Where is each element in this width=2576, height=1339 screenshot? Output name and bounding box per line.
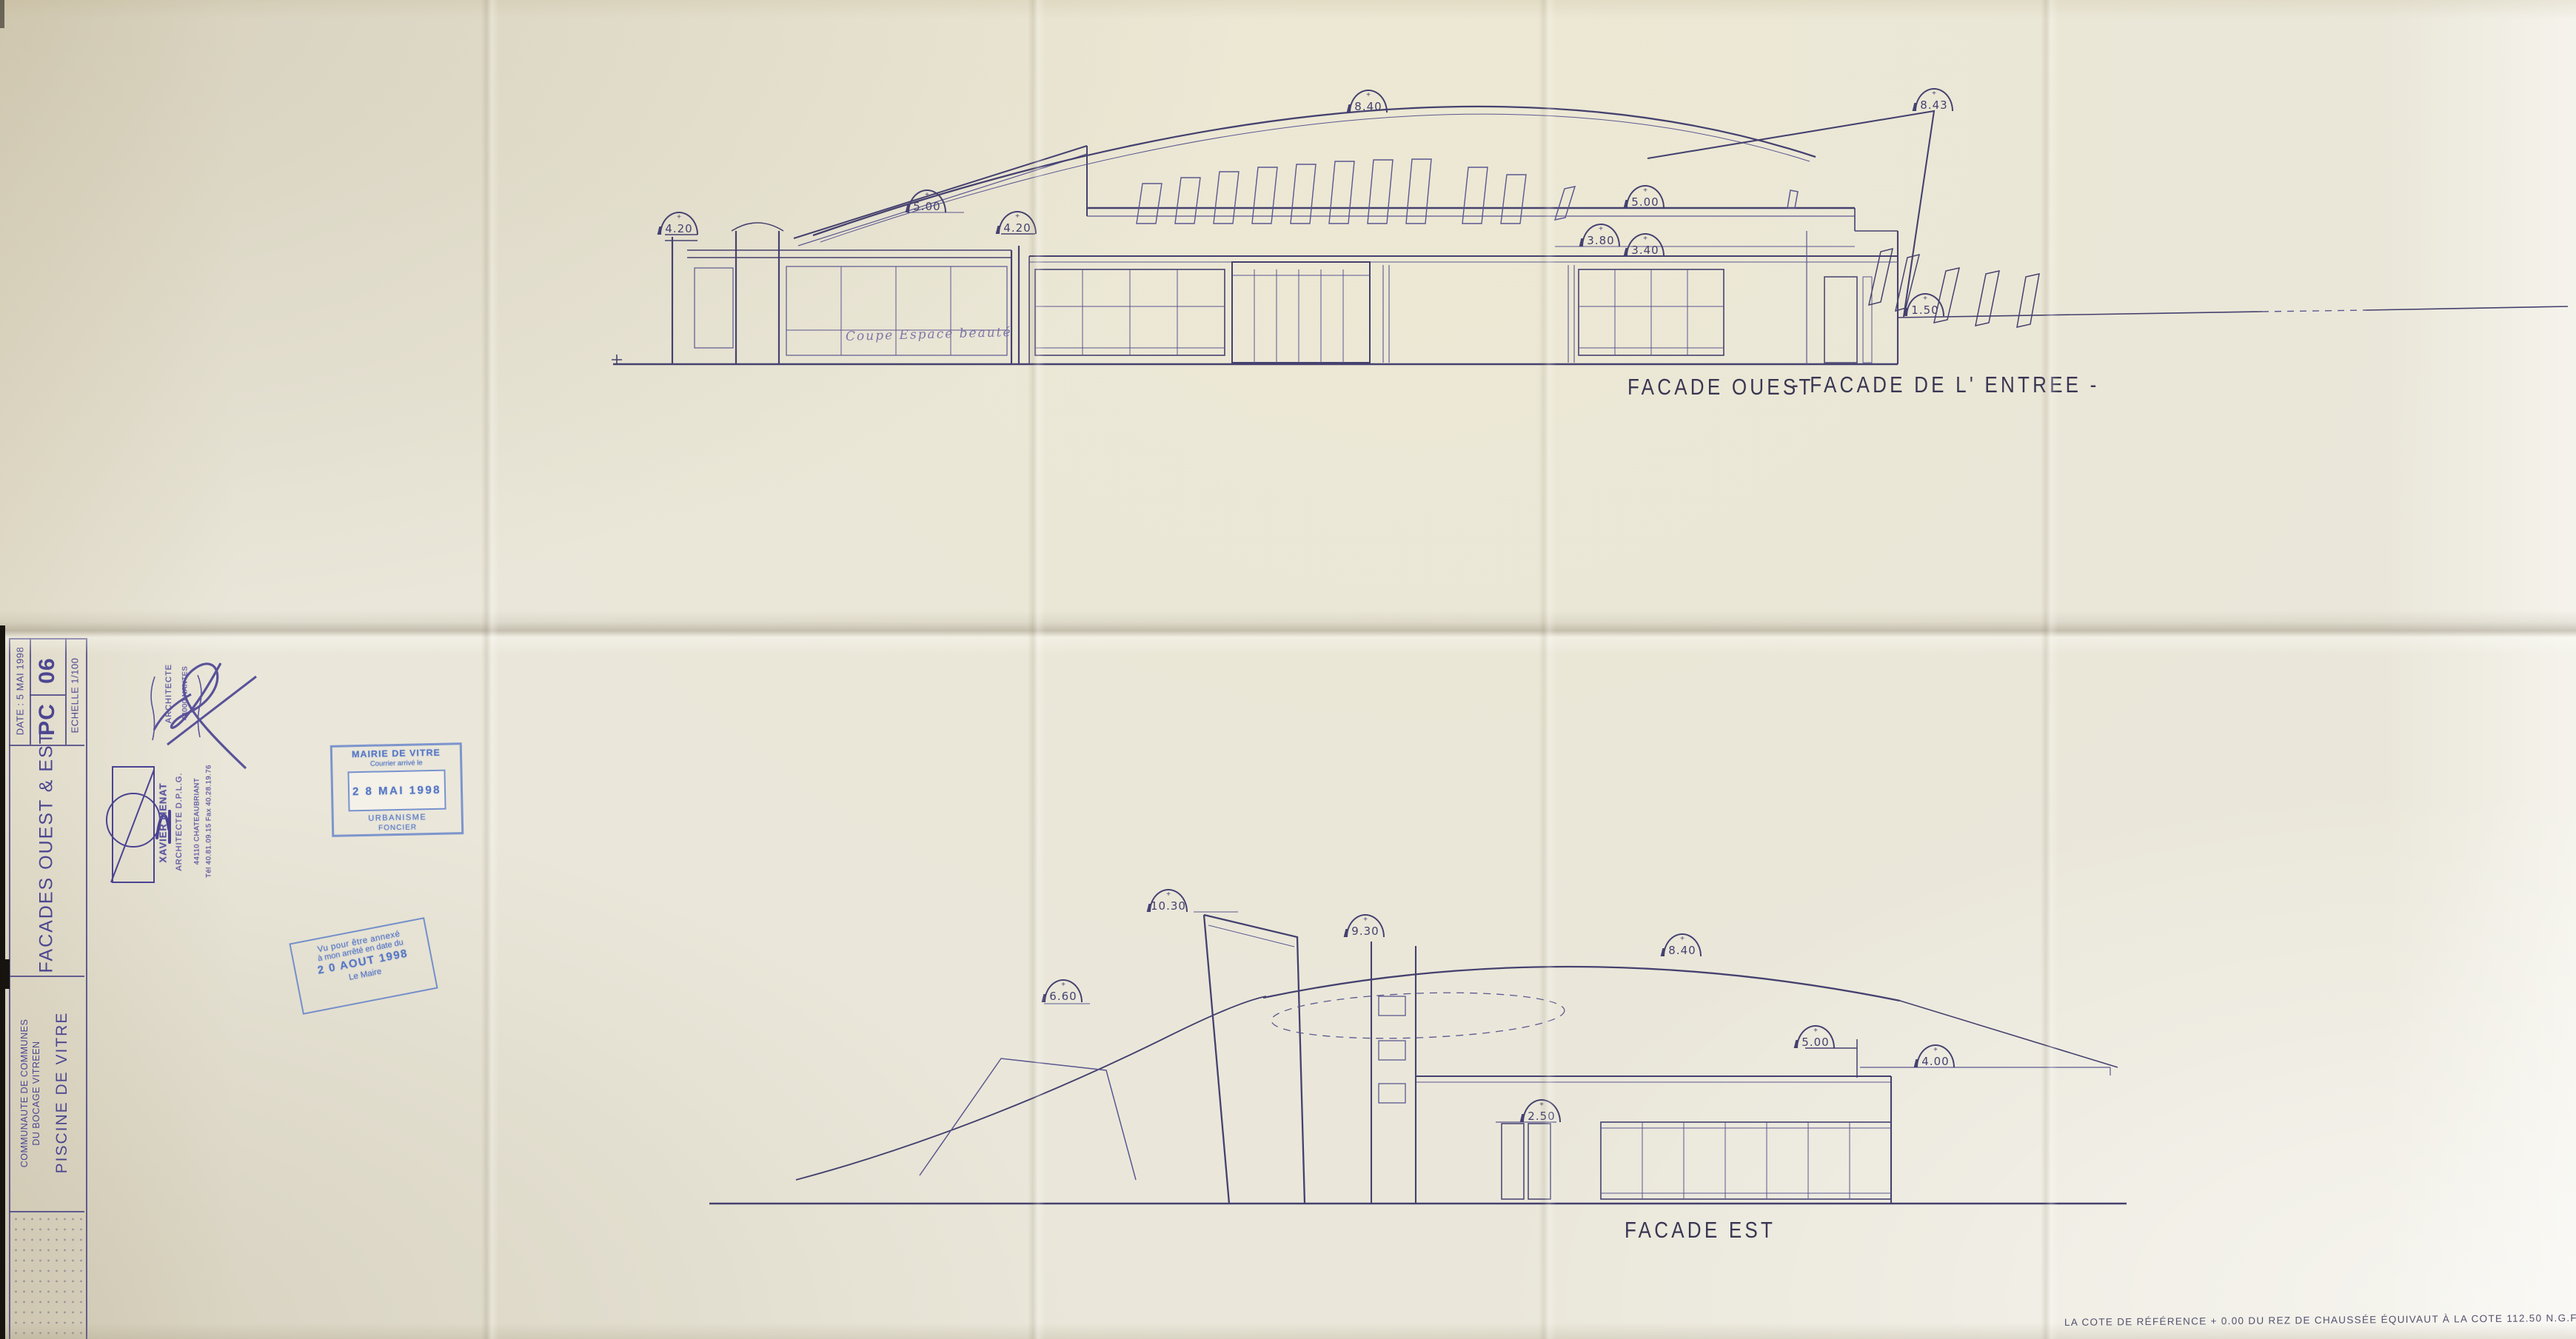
elevation-value: 10.30 bbox=[1151, 900, 1186, 913]
client-name-1: COMMUNAUTE DE COMMUNES bbox=[19, 982, 30, 1204]
plus-mark: + bbox=[1363, 916, 1368, 923]
plus-mark: + bbox=[1015, 213, 1020, 220]
stamp-department: URBANISME bbox=[334, 812, 461, 824]
plus-mark: + bbox=[677, 214, 681, 221]
sheet-title: FACADES OUEST & EST bbox=[36, 744, 58, 973]
project-name: PISCINE DE VITRE bbox=[53, 981, 71, 1204]
stamp-date: 2 8 MAI 1998 bbox=[352, 783, 441, 798]
plus-mark: + bbox=[1599, 226, 1603, 232]
elevation-drawings bbox=[0, 0, 2576, 1339]
architect-city: 44110 CHATEAUBRIANT bbox=[193, 740, 201, 903]
title-block-divider bbox=[30, 694, 65, 696]
sheet-number: 06 bbox=[35, 648, 60, 693]
east-elevation-drawing bbox=[709, 912, 2127, 1204]
elevation-value: 3.40 bbox=[1627, 244, 1663, 257]
title-block-divider bbox=[30, 638, 31, 745]
architect-name: XAVIER MENAT bbox=[158, 742, 169, 905]
plus-mark: + bbox=[1166, 891, 1171, 898]
elevation-value: 6.60 bbox=[1046, 990, 1081, 1003]
elevation-value: 5.00 bbox=[1627, 196, 1663, 209]
elevation-value: 3.80 bbox=[1583, 235, 1619, 247]
scan-edge-notch bbox=[0, 959, 10, 989]
title-block-divider bbox=[65, 638, 67, 745]
scan-edge-top bbox=[0, 0, 4, 28]
client-name-2: DU BOCAGE VITREEN bbox=[31, 982, 41, 1204]
plus-mark: + bbox=[1061, 981, 1065, 988]
plus-mark: + bbox=[925, 192, 929, 198]
elevation-value: 1.50 bbox=[1907, 304, 1943, 317]
plus-mark: + bbox=[1643, 235, 1647, 242]
elevation-value: 4.20 bbox=[1000, 222, 1035, 235]
plus-mark: + bbox=[1643, 187, 1647, 194]
elevation-value: 5.00 bbox=[1798, 1036, 1833, 1049]
west-elevation-label: FACADE OUEST bbox=[1627, 374, 1814, 400]
plus-mark: + bbox=[1813, 1027, 1818, 1034]
elevation-value: 9.30 bbox=[1348, 925, 1383, 938]
elevation-value: 5.00 bbox=[909, 201, 945, 213]
stamp-caption: Courrier arrivé le bbox=[332, 758, 460, 769]
architect-title: ARCHITECTE D.P.L.G. bbox=[175, 740, 184, 903]
letterhead-grid bbox=[12, 1214, 83, 1337]
plus-mark: + bbox=[1933, 1047, 1938, 1053]
plus-mark: + bbox=[1680, 936, 1685, 942]
plus-mark: + bbox=[1539, 1101, 1544, 1108]
plus-mark: + bbox=[1932, 90, 1936, 97]
elevation-value: 4.20 bbox=[661, 223, 697, 235]
architect-phone: Tél 40.81.09.15 Fax 40.28.19.76 bbox=[205, 740, 213, 903]
elevation-value: 8.40 bbox=[1351, 101, 1386, 113]
scale-label: ECHELLE 1/100 bbox=[70, 622, 81, 770]
plus-mark: + bbox=[1366, 92, 1371, 98]
elevation-value: 2.50 bbox=[1524, 1110, 1559, 1123]
stamp-date-box: 2 8 MAI 1998 bbox=[347, 770, 446, 812]
elevation-value: 8.40 bbox=[1665, 944, 1700, 957]
stamp-department: FONCIER bbox=[334, 822, 461, 833]
mairie-arrival-stamp: MAIRIE DE VITRE Courrier arrivé le 2 8 M… bbox=[330, 742, 464, 837]
title-block-divider bbox=[9, 976, 84, 977]
sheet-date: DATE : 5 MAI 1998 bbox=[15, 617, 26, 765]
elevation-value: 8.43 bbox=[1916, 99, 1952, 112]
plus-mark: + bbox=[1923, 295, 1927, 302]
entrance-elevation-label: - FACADE DE L' ENTREE - bbox=[1792, 372, 2100, 398]
scanned-plan-sheet: FACADE OUEST - FACADE DE L' ENTREE - FAC… bbox=[0, 0, 2576, 1339]
east-elevation-label: FACADE EST bbox=[1625, 1217, 1776, 1244]
title-block-divider bbox=[9, 1211, 84, 1212]
elevation-value: 4.00 bbox=[1918, 1056, 1953, 1068]
